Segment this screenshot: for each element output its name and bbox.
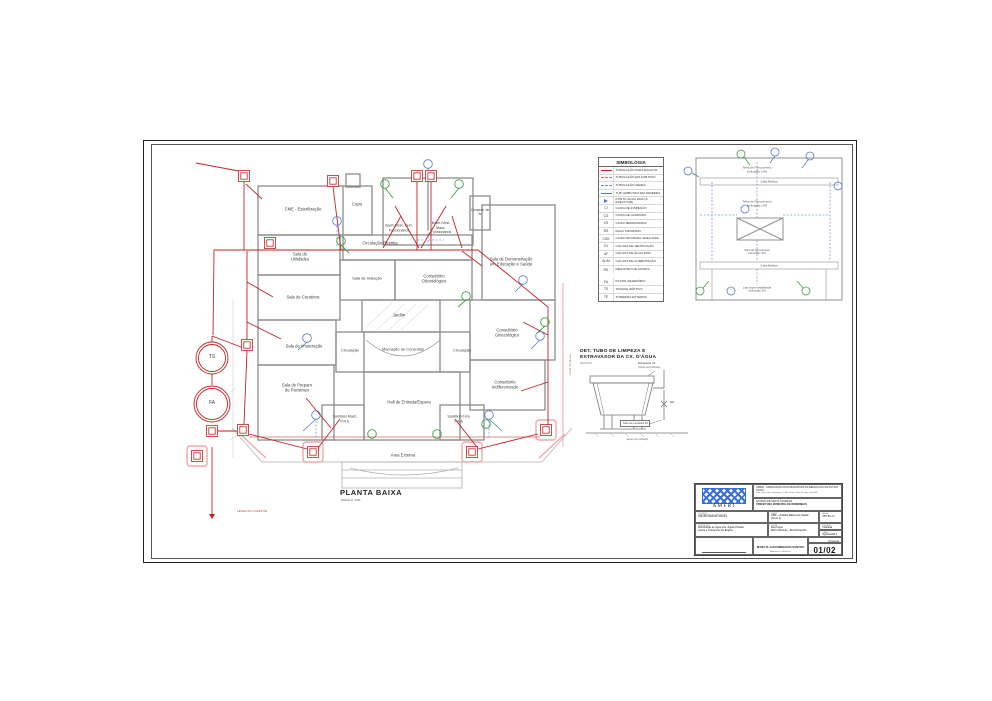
field-responsavel: MARA R. GIACOMINI DOS SANTOS Arquiteta e… <box>753 537 807 555</box>
tank-fa-label: FA <box>209 400 215 407</box>
legend-title: SIMBOLOGIA <box>599 158 663 167</box>
room-label-circulacao-2: Circulação <box>449 349 475 354</box>
field-data: DATA Agosto/2013 <box>819 530 842 537</box>
legend-row: CVCOLUNA DE VENTILAÇÃO <box>599 243 663 251</box>
cad-linework <box>0 0 992 701</box>
room-label-odontologico: Consultório Odontológico <box>413 274 455 285</box>
pink-layer <box>187 283 565 466</box>
blue-dashed-line-sample <box>599 182 614 189</box>
room-label-circulacao-1: Circulação <box>337 349 363 354</box>
room-label-san-fem: Sanitário Fem. P.N.E <box>445 414 473 423</box>
amfri-logo-text: AMFRI <box>712 504 735 509</box>
legend-row: CGCAIXA DE GORDURA <box>599 213 663 221</box>
detail-rg-label: RG <box>670 401 674 405</box>
room-label-area-externa: Área Externa <box>391 452 415 457</box>
red-solid-line-sample <box>599 167 614 174</box>
room-label-banh-masc: Banh./Vest. Masc. Funcionários <box>427 221 455 235</box>
legend-row: TUBULAÇÃO AÉREA <box>599 182 663 190</box>
plan-scale: ESCALA: 1/50 <box>341 498 360 502</box>
org-header: AMFRI - ASSOCIAÇÃO DOS MUNICÍPIOS DA REG… <box>753 484 842 498</box>
field-projeto: PROJETO HIDROSANITÁRIO <box>695 511 768 523</box>
blue-solid-line-sample <box>599 190 614 197</box>
room-label-demonstracao: Sala de Demonstração em Educação e Saúde <box>488 257 534 268</box>
field-folha: 01/02 <box>808 543 842 555</box>
org-address: Rua Luiz Lopes Gonzaga, nº 655, Bairro S… <box>756 492 839 495</box>
detail-title: DET. TUBO DE LIMPEZA E EXTRAVASOR DA CX.… <box>580 349 656 361</box>
room-label-banh-fem: Banh./Vest. Fem. Funcionários <box>385 223 413 232</box>
legend-row: TETORNEIRA EXTERNA <box>599 294 663 302</box>
gov-header: ESTADO DE SANTA CATARINA PREFEITURA MUNI… <box>753 498 842 511</box>
legend-row: CSCAIXA SEPARADORA <box>599 220 663 228</box>
room-label-inalacao: Sala de Inalação <box>352 275 382 280</box>
note-linha-divisa: Linha de Divisa <box>568 354 572 375</box>
vent-markers-layer <box>337 180 550 439</box>
amfri-logo: AMFRI <box>695 484 753 511</box>
title-block: AMFRI AMFRI - ASSOCIAÇÃO DOS MUNICÍPIOS … <box>694 483 843 556</box>
room-label-hall: Hall de Entrada/Espera <box>387 399 430 404</box>
detail-tubo-label: Tubo de Limpeza 32 <box>620 420 650 427</box>
legend-row: TUBULAÇÃO EM SUB-PISO <box>599 175 663 183</box>
room-label-san-masc: Sanitário Masc. P.N.E <box>331 414 359 423</box>
plan-title: PLANTA BAIXA <box>340 488 402 497</box>
detail-extravasor-label: Extravasor 32 (vazar pelo telhado) <box>638 362 660 369</box>
field-conteudo: CONTEÚDO Distribuição de Água Fria, Água… <box>695 523 768 537</box>
note-levar-coletor: LEVAR AO COLETOR <box>237 510 267 514</box>
legend-row: ALIMCOLUNA DE ALIMENTAÇÃO <box>599 258 663 266</box>
field-assinatura: Prefeito Municipal <box>695 537 753 555</box>
roof-telha-label-1: Telha de FibrocimentoInclinação 10% <box>742 166 772 174</box>
legend-row: TSTANQUE SÉPTICO <box>599 286 663 294</box>
room-label-preparo: Sala de Preparo de Pacientes <box>280 383 314 394</box>
roof-telha-label-2: Telha de FibrocimentoInclinação 10% <box>742 200 772 208</box>
room-label-imunizacao: Sala de Imunização <box>286 343 323 348</box>
room-label-compressor: Compres. de Ar <box>470 208 490 216</box>
room-label-jardim: Jardim <box>393 312 406 317</box>
tank-ts-label: TS <box>209 354 215 361</box>
room-label-indiferenciado: Consultório Indiferenciado <box>486 380 524 391</box>
roof-telha-label-3: Telha de FibrocimentoInclinação 10% <box>744 249 770 255</box>
roof-laje-label: Laje ImpermeabilizadaInclinação 2% <box>743 287 771 294</box>
room-label-marcacao: Marcação de Consultas <box>382 346 424 351</box>
room-label-curativos: Sala de Curativos <box>286 294 319 299</box>
field-local: LOCAL Rua Coqui Bairro Bombas - Bombinha… <box>768 523 819 537</box>
roof-calha-label-2: Calha Metálica <box>760 264 777 267</box>
field-escala: ESCALA Indicada <box>819 523 842 530</box>
legend-row: AFCOLUNA DE ÁGUA FRIA <box>599 251 663 259</box>
room-label-cme: CME - Esterilização <box>283 206 323 211</box>
legend-row: RSRALO SIFONADO <box>599 228 663 236</box>
detail-tubo-sub-label: (vazar pelo telhado) <box>626 438 648 441</box>
legend-row: FAFILTRO ANAERÓBIO <box>599 278 663 286</box>
roof-calha-label-1: Calha Metálica <box>760 180 777 183</box>
legend-box: SIMBOLOGIA TUBULAÇÃO PARA ESGOTO TUBULAÇ… <box>598 157 664 302</box>
field-area: ÁREA 257,81 m² <box>819 511 842 523</box>
room-label-copa: Copa <box>352 201 362 206</box>
amfri-logo-pattern <box>702 488 746 504</box>
gov-city: PREFEITURA MUNICIPAL DE BOMBINHAS <box>756 503 839 506</box>
room-label-utilidades: Sala de Utilidades <box>287 252 313 263</box>
detail-scale-note: S/ESCALA <box>580 362 592 365</box>
legend-row: RGREGISTRO DE GAVETA <box>599 266 663 274</box>
room-label-ginecologico: Consultório Ginecológico <box>488 328 526 339</box>
water-point-sample <box>599 197 614 204</box>
drawing-canvas: CME - Esterilização Copa Banh./Vest. Fem… <box>0 0 992 701</box>
legend-row: PONTO ÁGUA FRIA (A EXECUTAR) <box>599 197 663 205</box>
field-obra: OBRA UBS - Unidade Básica de Saúde (Port… <box>768 511 819 523</box>
legend-row: TUBULAÇÃO PARA ESGOTO <box>599 167 663 175</box>
signature-line <box>702 552 746 553</box>
red-dashed-line-sample <box>599 175 614 182</box>
legend-row: CSGCAIXA SIFONADA GRELHADA <box>599 235 663 243</box>
legend-row: CICAIXA DE INSPEÇÃO <box>599 205 663 213</box>
room-label-circ-restrita: Circulação Restrita <box>362 240 397 245</box>
